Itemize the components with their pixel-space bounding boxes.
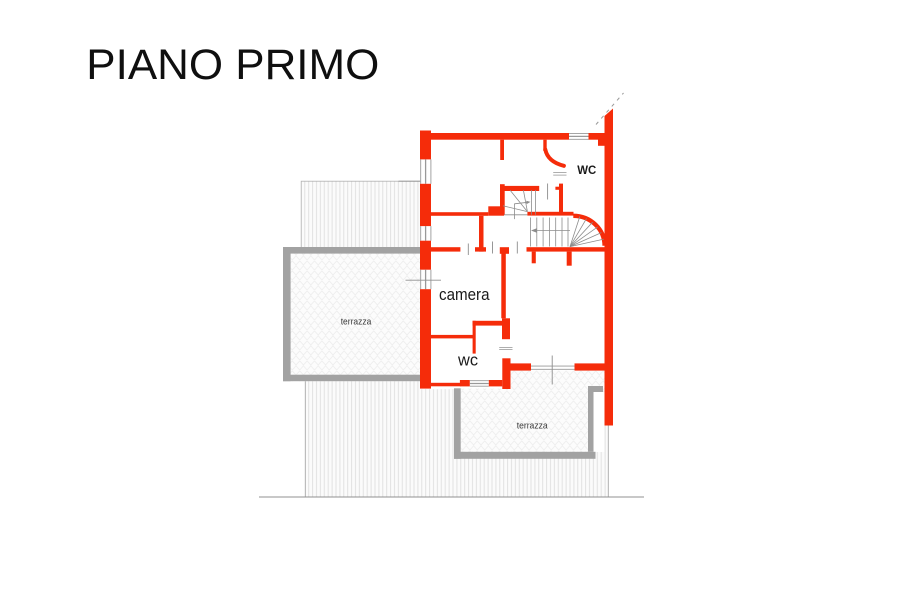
svg-text:terrazza: terrazza	[517, 421, 548, 431]
svg-text:camera: camera	[439, 285, 490, 304]
svg-text:PIANO PRIMO: PIANO PRIMO	[86, 41, 379, 89]
svg-text:terrazza: terrazza	[341, 317, 372, 327]
svg-text:wc: wc	[457, 351, 478, 370]
svg-text:WC: WC	[577, 163, 596, 177]
